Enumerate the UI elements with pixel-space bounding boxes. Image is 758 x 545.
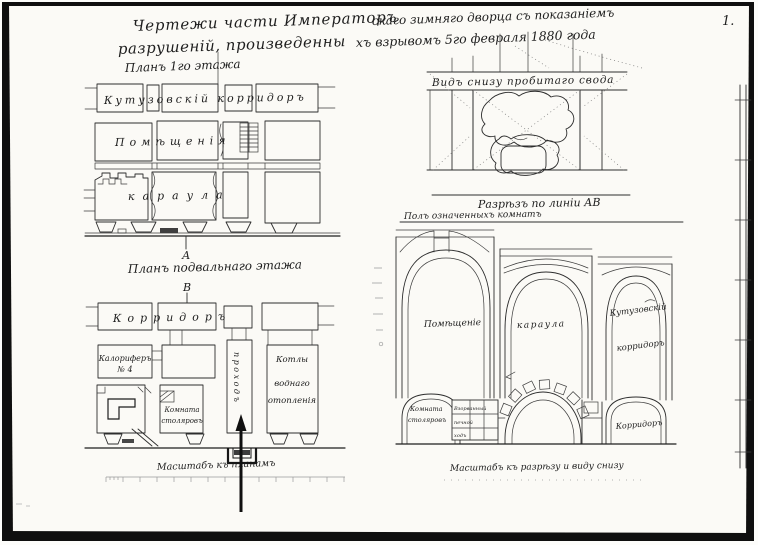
paper-background: [6, 6, 751, 534]
sill-block: [160, 228, 178, 233]
bay1-label: Помѣщеніе: [423, 318, 481, 330]
plan1-guard-label: караула: [128, 188, 231, 203]
page-number: 1.: [722, 14, 734, 29]
cellar-left-label-2: столяровъ: [408, 416, 447, 424]
marker-b: В: [182, 281, 191, 294]
boilers-label-1: Котлы: [275, 355, 308, 365]
boilers-label-2: воднаго: [274, 379, 310, 389]
blown-label-1: Взорванный: [453, 406, 486, 412]
plan1-rooms-label: Помѣщенія: [114, 134, 231, 149]
carpenters-label-2: столяровъ: [161, 417, 203, 425]
blown-label-3: ходъ: [454, 433, 467, 439]
blown-flue-boxes: Взорванный печной ходъ: [452, 400, 498, 440]
passage-label-vertical: проходъ: [232, 352, 241, 404]
blown-label-2: печной: [454, 420, 473, 426]
carpenters-label-1: Комната: [163, 406, 199, 414]
scanned-drawing-sheet: Чертежи части Императоръ скаго зимняго д…: [0, 0, 758, 545]
plan2-corridor-label: Корридоръ: [112, 310, 231, 325]
cellar-left-label-1: Комната: [409, 405, 443, 413]
drawing-canvas: Чертежи части Императоръ скаго зимняго д…: [0, 0, 758, 545]
bay2-label: караула: [517, 319, 566, 331]
calorifer-label-2: № 4: [116, 365, 132, 374]
calorifer-label-1: Калориферъ: [98, 354, 152, 363]
boilers-label-3: отопленія: [268, 396, 317, 406]
